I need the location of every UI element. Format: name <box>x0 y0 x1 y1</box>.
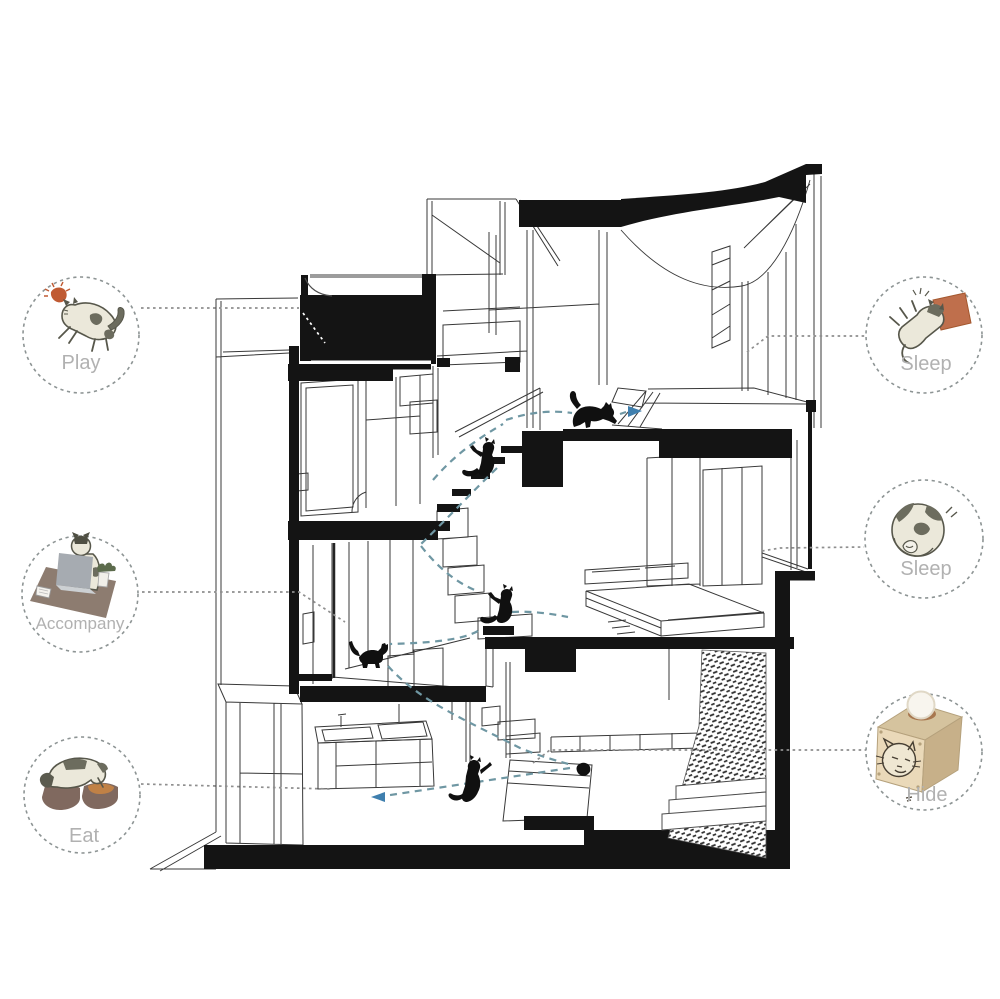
svg-text:Sleep: Sleep <box>900 353 951 375</box>
svg-text:Sleep: Sleep <box>900 558 951 580</box>
svg-text:Hide: Hide <box>906 784 947 806</box>
svg-text:Accompany: Accompany <box>36 614 125 633</box>
svg-text:Play: Play <box>62 352 101 374</box>
svg-text:Eat: Eat <box>69 825 99 847</box>
